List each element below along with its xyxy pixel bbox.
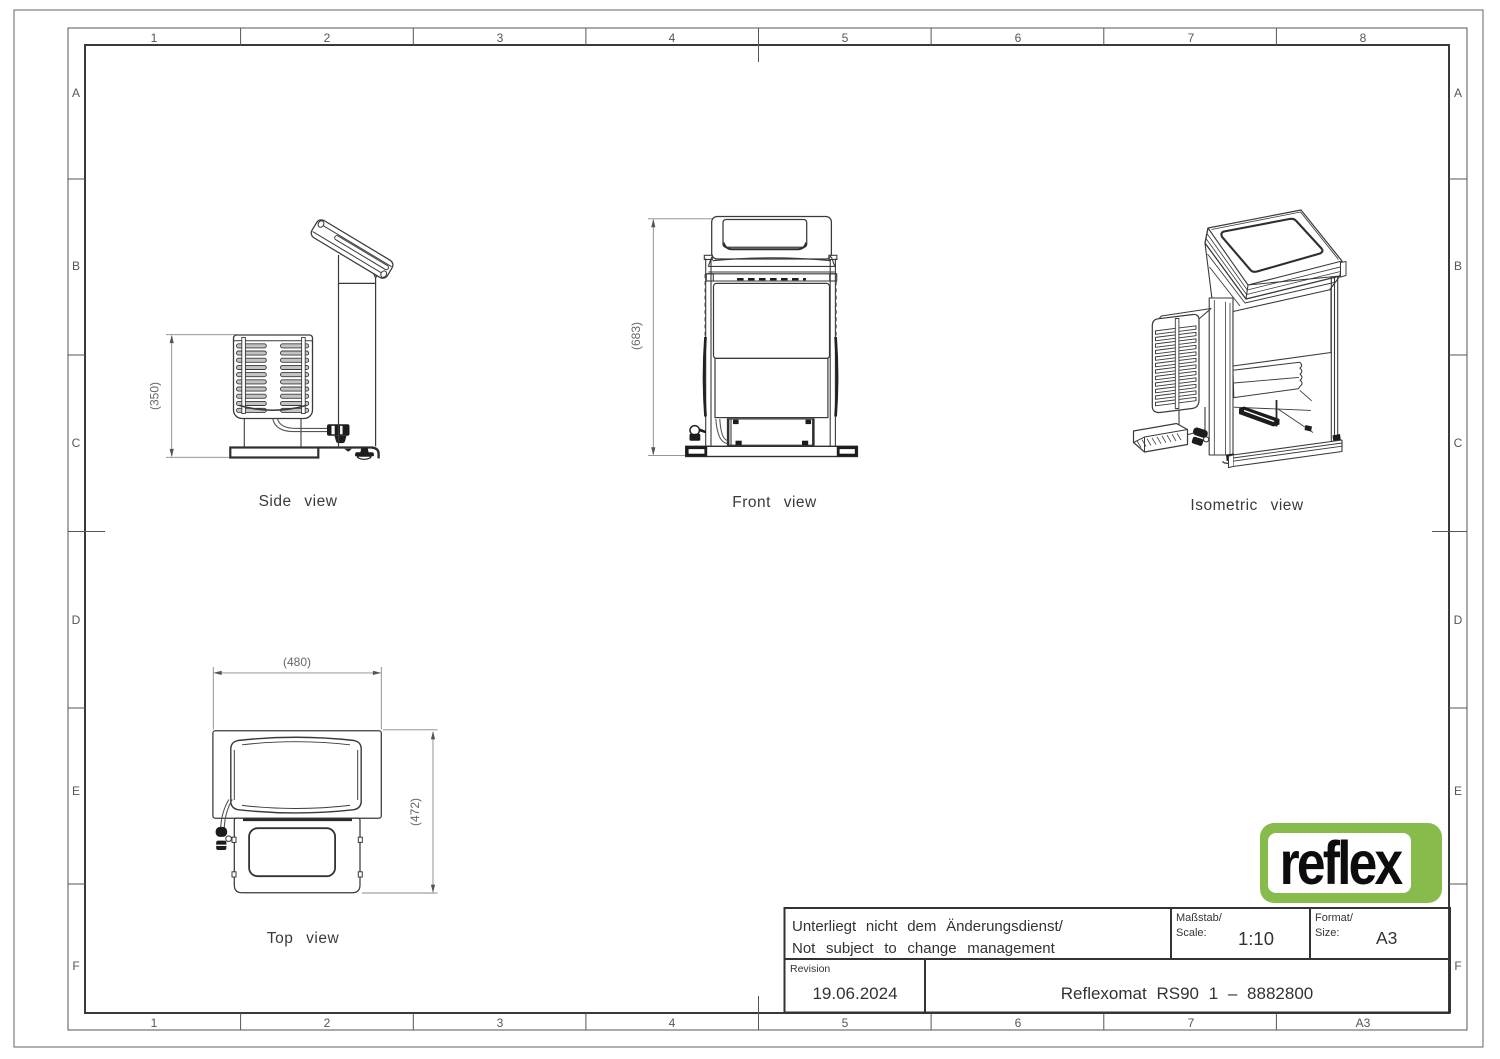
svg-text:Maßstab/: Maßstab/ bbox=[1176, 912, 1223, 924]
svg-text:Scale:: Scale: bbox=[1176, 927, 1207, 939]
svg-text:Side view: Side view bbox=[259, 493, 338, 510]
svg-text:A: A bbox=[1454, 86, 1462, 100]
svg-text:reflex: reflex bbox=[1280, 830, 1404, 898]
svg-text:Isometric view: Isometric view bbox=[1190, 497, 1303, 514]
svg-text:7: 7 bbox=[1188, 1016, 1195, 1030]
svg-text:1:10: 1:10 bbox=[1238, 928, 1274, 949]
svg-text:3: 3 bbox=[497, 1016, 504, 1030]
svg-text:(683): (683) bbox=[629, 322, 643, 350]
svg-text:C: C bbox=[1454, 436, 1463, 450]
svg-text:(480): (480) bbox=[283, 655, 311, 669]
svg-text:B: B bbox=[72, 259, 80, 273]
svg-text:Revision: Revision bbox=[790, 963, 830, 975]
svg-text:Not subject to change manageme: Not subject to change management bbox=[792, 940, 1056, 957]
svg-text:A3: A3 bbox=[1376, 928, 1397, 948]
svg-text:E: E bbox=[1454, 784, 1462, 798]
svg-text:A: A bbox=[72, 86, 80, 100]
svg-text:3: 3 bbox=[497, 31, 504, 45]
svg-text:Format/: Format/ bbox=[1315, 912, 1354, 924]
svg-text:C: C bbox=[72, 436, 81, 450]
svg-text:5: 5 bbox=[842, 31, 849, 45]
svg-text:Reflexomat RS90 1 – 8882800: Reflexomat RS90 1 – 8882800 bbox=[1061, 984, 1314, 1003]
svg-text:2: 2 bbox=[324, 1016, 331, 1030]
svg-text:D: D bbox=[72, 613, 81, 627]
svg-text:F: F bbox=[72, 959, 79, 973]
svg-text:8: 8 bbox=[1360, 31, 1367, 45]
svg-text:2: 2 bbox=[324, 31, 331, 45]
svg-text:6: 6 bbox=[1015, 31, 1022, 45]
svg-text:1: 1 bbox=[151, 1016, 158, 1030]
svg-text:4: 4 bbox=[669, 31, 676, 45]
svg-text:6: 6 bbox=[1015, 1016, 1022, 1030]
svg-text:A3: A3 bbox=[1356, 1016, 1371, 1030]
svg-text:B: B bbox=[1454, 259, 1462, 273]
svg-text:Unterliegt nicht dem Änderungs: Unterliegt nicht dem Änderungsdienst/ bbox=[792, 918, 1064, 935]
svg-text:Size:: Size: bbox=[1315, 927, 1339, 939]
svg-text:E: E bbox=[72, 784, 80, 798]
svg-text:4: 4 bbox=[669, 1016, 676, 1030]
svg-text:D: D bbox=[1454, 613, 1463, 627]
svg-text:1: 1 bbox=[151, 31, 158, 45]
svg-text:7: 7 bbox=[1188, 31, 1195, 45]
svg-text:Top view: Top view bbox=[267, 930, 340, 947]
svg-text:5: 5 bbox=[842, 1016, 849, 1030]
svg-text:F: F bbox=[1454, 959, 1461, 973]
svg-text:(350): (350) bbox=[148, 382, 162, 410]
svg-text:(472): (472) bbox=[408, 798, 422, 826]
svg-text:19.06.2024: 19.06.2024 bbox=[812, 984, 897, 1003]
svg-text:Front view: Front view bbox=[732, 494, 817, 511]
